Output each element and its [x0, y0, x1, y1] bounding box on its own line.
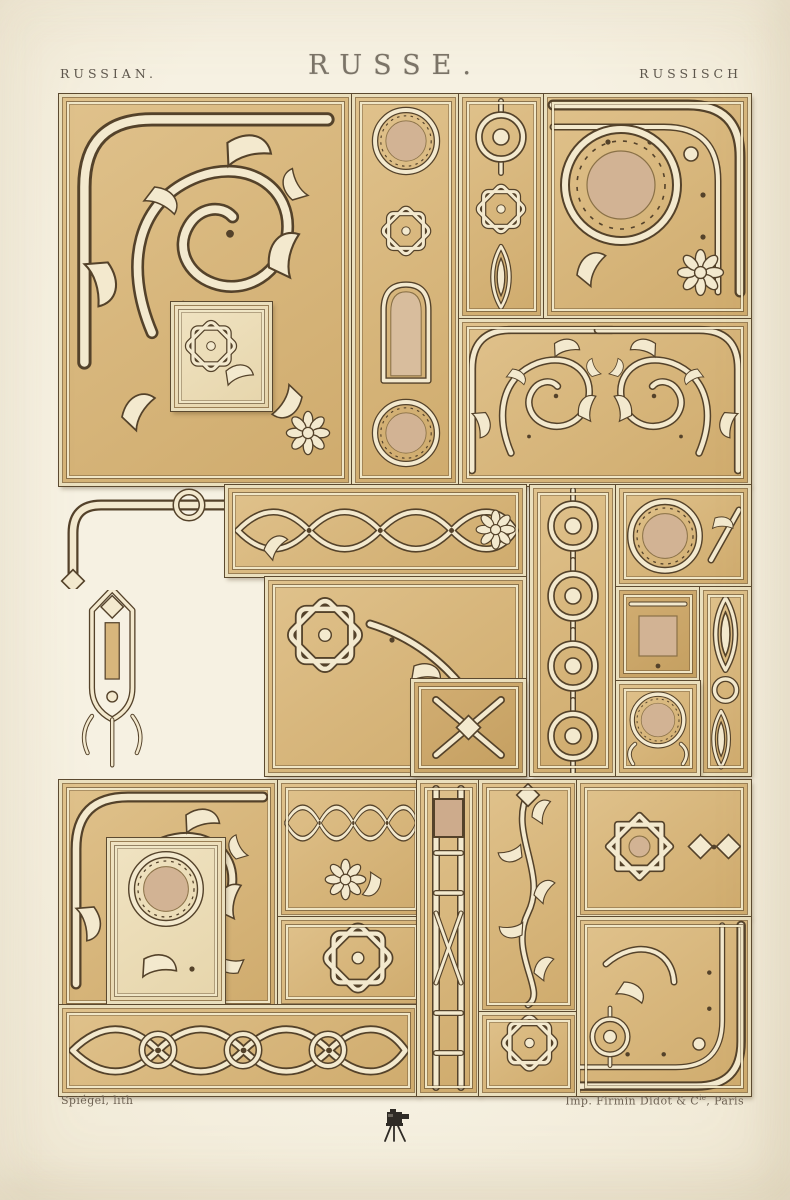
printer-credit: Imp. Firmin Didot & Cie, Paris	[565, 1094, 744, 1108]
ornament-panel-knot-column	[459, 94, 544, 319]
ornament-panel-knot-small	[278, 917, 425, 1007]
ornament-panel-star	[577, 780, 751, 918]
ornament-panel-scroll-strip-2	[278, 780, 425, 918]
ornament-panel-knot-low	[479, 1012, 578, 1096]
ornament-bracket-pendant	[65, 590, 169, 776]
title-right-german: RUSSISCH	[639, 66, 742, 81]
lithograph-page: RUSSIAN. RUSSE. RUSSISCH	[0, 0, 790, 1200]
ornament-panel-double-scroll	[459, 319, 751, 486]
ornament-panel-inset-medallion	[107, 838, 225, 1004]
lithographer-credit: Spiégel, lith	[61, 1094, 133, 1107]
ornament-panel-guilloche-column	[530, 485, 616, 776]
ornament-panel-block	[616, 587, 700, 681]
printer-credit-suffix: , Paris	[706, 1095, 744, 1108]
ornament-panel-floral-column	[479, 780, 578, 1013]
ornament-panel-quatrefoil-corner	[577, 917, 751, 1096]
ornament-panel-medallion-column	[352, 94, 459, 486]
ornament-panel-medallion-knot	[616, 485, 751, 587]
ornament-plate	[59, 94, 746, 1092]
ornament-panel-cross-inset	[411, 679, 526, 776]
ornament-panel-chain-border	[59, 1005, 418, 1096]
ornament-panel-vesica-column	[700, 587, 751, 776]
camera-on-tripod-icon	[381, 1106, 415, 1144]
ornament-panel-ladder-column	[417, 780, 480, 1096]
ornament-panel-ring-corner	[544, 94, 751, 319]
ornament-panel-medallion-small	[616, 681, 700, 776]
ornament-panel-scroll-strip	[225, 485, 526, 577]
ornament-panel-foliate-corner-large	[59, 94, 352, 486]
printer-credit-text: Imp. Firmin Didot & C	[565, 1095, 699, 1108]
ornament-panel-corner-sample	[171, 302, 272, 411]
